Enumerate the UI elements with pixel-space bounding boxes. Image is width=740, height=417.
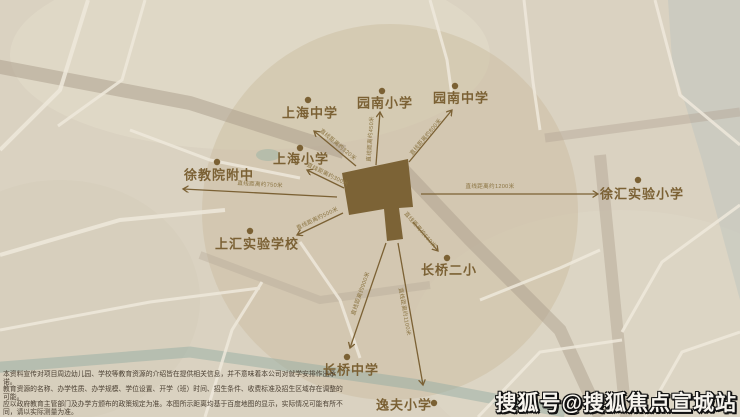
school-label: 徐教院附中	[184, 165, 254, 184]
school-label: 上汇实验学校	[215, 234, 299, 253]
school-district-map: 直线距离约320米直线距离约300米直线距离约450米直线距离约800米直线距离…	[0, 0, 740, 417]
watermark: 搜狐号@搜狐焦点宣城站	[496, 387, 737, 417]
school-label: 上海小学	[273, 149, 329, 168]
school-label: 园南小学	[357, 93, 413, 112]
disclaimer-line: 本资料宣传对项目周边幼儿园、学校等教育资源的介绍皆在提供相关信息，并不意味着本公…	[3, 371, 348, 386]
school-label: 园南中学	[433, 88, 489, 107]
school-dot-marker	[635, 177, 641, 183]
school-label: 逸夫小学	[376, 395, 432, 414]
disclaimer-line: 教育资源的名称、办学性质、办学规模、学位设置、开学（班）时间、招生条件、收费标准…	[3, 386, 348, 401]
disclaimer-line: 同，请以实际测量为准。	[3, 409, 348, 417]
school-label: 徐汇实验小学	[600, 184, 684, 203]
school-label: 上海中学	[282, 103, 338, 122]
disclaimer-text: 本资料宣传对项目周边幼儿园、学校等教育资源的介绍皆在提供相关信息，并不意味着本公…	[3, 371, 348, 417]
distance-label: 直线距离约1200米	[465, 182, 514, 190]
map-canvas: 直线距离约320米直线距离约300米直线距离约450米直线距离约800米直线距离…	[0, 0, 740, 417]
school-label: 长桥二小	[421, 260, 477, 279]
disclaimer-line: 应以政府教育主管部门及办学方颁布的政策规定为准。本图所示距离均基于百度地图的显示…	[3, 401, 348, 409]
